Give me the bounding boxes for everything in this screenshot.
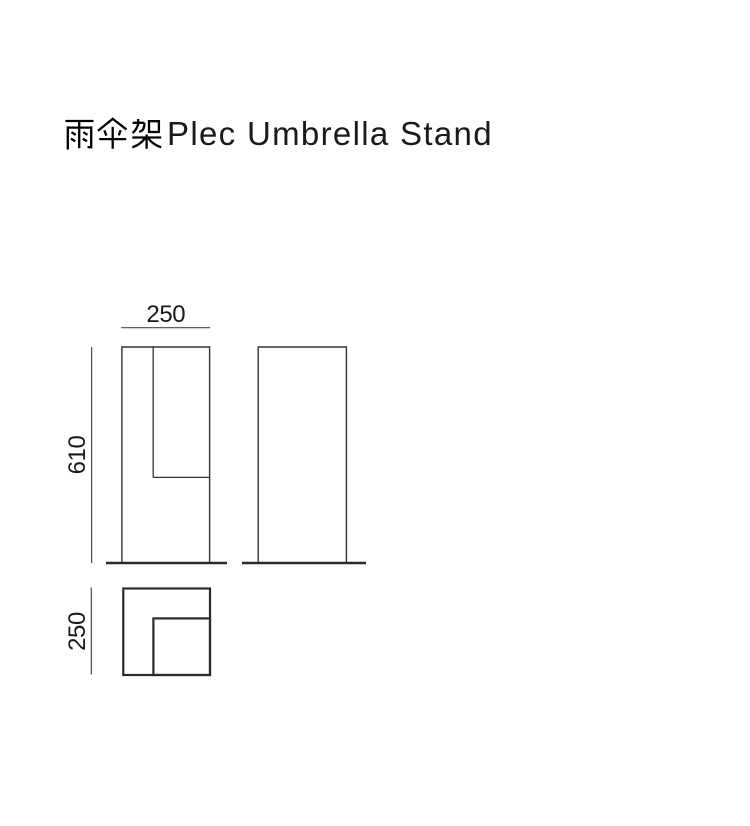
- svg-text:250: 250: [64, 612, 91, 651]
- svg-text:250: 250: [146, 301, 185, 328]
- svg-text:610: 610: [64, 436, 91, 475]
- svg-text:Plec Umbrella Stand: Plec Umbrella Stand: [167, 115, 493, 152]
